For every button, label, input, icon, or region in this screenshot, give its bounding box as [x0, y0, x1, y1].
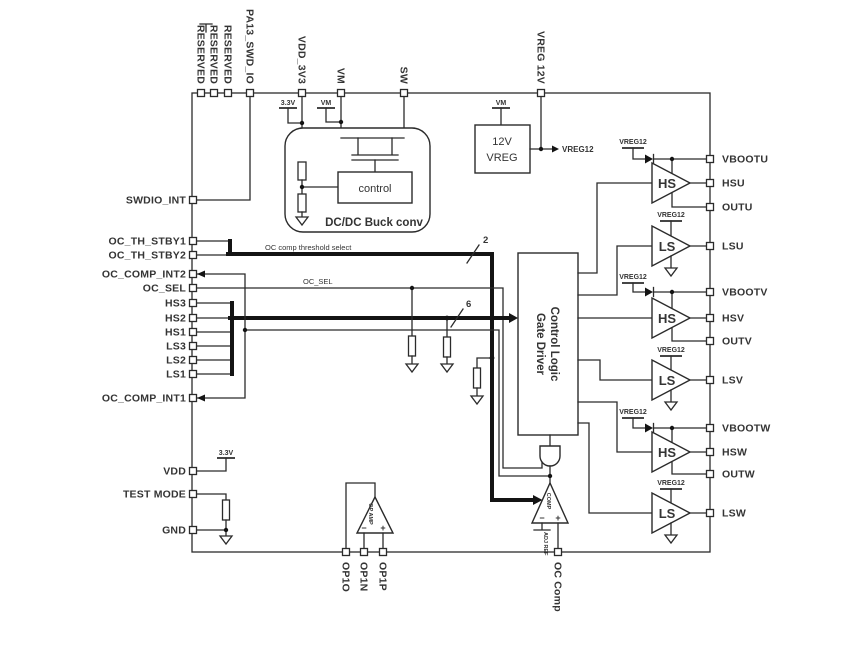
ls-driver-label: LS — [659, 239, 676, 254]
pin-outw — [707, 471, 714, 478]
junction-dot — [300, 185, 304, 189]
pin-test-mode — [190, 491, 197, 498]
top-pin-label: VREG 12V — [535, 31, 547, 84]
left-pin-label: HS2 — [165, 313, 186, 325]
top-pin-label: RESERVED — [222, 25, 234, 84]
pin-ls3 — [190, 343, 197, 350]
driver-ls-v: VREG12 LS — [652, 347, 707, 410]
opamp-label-rot: OP AMP — [367, 503, 373, 525]
gate-drive-routes — [578, 183, 652, 513]
left-pins: SWDIO_INT OC_TH_STBY1 OC_TH_STBY2 OC_COM… — [102, 195, 197, 537]
buck-title: DC/DC Buck conv — [325, 217, 423, 229]
pin-lsu — [707, 243, 714, 250]
junction-dot — [224, 528, 228, 532]
right-pin-label: VBOOTV — [722, 287, 768, 299]
bus6-trace — [230, 303, 510, 374]
vreg-12v-block: VM 12V VREG VREG12 — [475, 100, 594, 173]
comparator-label-rot: COMP — [545, 493, 551, 510]
left-pin-label: LS3 — [166, 341, 186, 353]
boot-supply-wire — [633, 418, 645, 428]
oc-comp-feedback-net — [197, 271, 550, 477]
pin-vbootu — [707, 156, 714, 163]
vreg-box — [475, 125, 530, 173]
right-pin-label: VBOOTW — [722, 423, 770, 435]
ls-driver-label: LS — [659, 373, 676, 388]
hs-driver-label: HS — [658, 311, 676, 326]
pin-vbootw — [707, 425, 714, 432]
junction-dot — [410, 286, 414, 290]
left-pin-label: TEST MODE — [123, 489, 186, 501]
pin-hs2 — [190, 315, 197, 322]
pin-ls1 — [190, 371, 197, 378]
buck-control-label: control — [358, 183, 391, 195]
pin-lsw — [707, 510, 714, 517]
and-gate-shape — [540, 446, 560, 466]
control-logic-block: Control Logic Gate Driver — [518, 253, 578, 435]
top-pin-label: RESERVED — [208, 25, 220, 84]
oc-comparator: COMP − + ADJ REF — [532, 476, 568, 556]
junction-dot — [670, 426, 674, 430]
oc-sel-label: OC_SEL — [303, 277, 333, 286]
bottom-pin-label: OP1O — [340, 562, 352, 592]
ground-symbol — [441, 364, 453, 372]
wire-pa13-to-swdio — [197, 97, 251, 201]
route-ls-w — [578, 423, 652, 513]
junction-dot — [243, 328, 247, 332]
pin-hsw — [707, 449, 714, 456]
left-pin-label: HS3 — [165, 298, 186, 310]
top-pin-label: VDD_3V3 — [296, 36, 308, 84]
oc-comp-int1-arrow-icon — [197, 395, 205, 402]
bottom-pin-label: OP1P — [377, 562, 389, 591]
vreg12-label: VREG12 — [657, 347, 685, 354]
pulldown-resistors — [406, 288, 492, 404]
pin-oc-comp-int1 — [190, 395, 197, 402]
pin-sw — [401, 90, 408, 97]
boot-supply-wire — [633, 283, 645, 292]
top-pin-label: VM — [335, 68, 347, 84]
comparator-minus-sign: − — [539, 513, 544, 523]
driver-ls-u: VREG12 LS — [652, 212, 707, 276]
pin-oc-comp-int2 — [190, 271, 197, 278]
ground-symbol — [665, 268, 677, 276]
pin-vdd — [190, 468, 197, 475]
pin-op1o — [343, 549, 350, 556]
hs-driver-label: HS — [658, 445, 676, 460]
pin-op1p — [380, 549, 387, 556]
pin-reserved-2 — [211, 90, 218, 97]
oc-threshold-bus: OC comp threshold select 2 — [197, 235, 543, 505]
left-pin-label: VDD — [163, 466, 186, 478]
pin-reserved-3 — [225, 90, 232, 97]
junction-dot — [548, 474, 552, 478]
left-pin-label: HS1 — [165, 327, 186, 339]
pin-oc-th-stby2 — [190, 252, 197, 259]
vdd-testmode-gnd: 3.3V — [197, 450, 236, 544]
adj-ref-label: ADJ REF — [542, 532, 548, 556]
top-pin-label: SW — [398, 67, 410, 84]
right-pin-label: HSW — [722, 447, 747, 459]
pin-oc-comp — [555, 549, 562, 556]
route-hs-u — [578, 183, 652, 273]
junction-dot — [670, 157, 674, 161]
bottom-pins: OP1O OP1N OP1P OC Comp — [340, 549, 564, 612]
supply-vm-label-2: VM — [496, 100, 507, 107]
pin-pa13-swd-io — [247, 90, 254, 97]
pin-vm — [338, 90, 345, 97]
testmode-resistor — [223, 500, 230, 520]
pin-vdd-3v3 — [299, 90, 306, 97]
driver-hs-v: VREG12 HS — [619, 274, 706, 341]
left-pin-label: GND — [162, 525, 186, 537]
bus2-trace — [228, 241, 535, 500]
ground-symbol — [665, 402, 677, 410]
vreg12-label: VREG12 — [657, 212, 685, 219]
control-logic-box — [518, 253, 578, 435]
supply-3v3-wire — [288, 108, 302, 123]
opamp-plus-sign: + — [380, 523, 385, 533]
buck-resistor-top — [298, 162, 306, 180]
left-pin-label: LS2 — [166, 355, 186, 367]
bus2-count: 2 — [483, 235, 488, 246]
right-pin-label: OUTU — [722, 202, 753, 214]
right-pin-label: LSV — [722, 375, 743, 387]
junction-dot — [490, 356, 495, 361]
pin-outv — [707, 338, 714, 345]
junction-dot — [339, 120, 343, 124]
pin-vbootv — [707, 289, 714, 296]
oc-comp-feedback-trace — [197, 274, 550, 476]
left-pin-label: OC_TH_STBY1 — [109, 236, 186, 248]
pin-hsv — [707, 315, 714, 322]
left-pin-label: OC_TH_STBY2 — [109, 250, 186, 262]
pin-op1n — [361, 549, 368, 556]
pin-ls2 — [190, 357, 197, 364]
supply-3v3-label: 3.3V — [281, 100, 296, 107]
vreg-label-2: VREG — [486, 152, 517, 164]
ground-symbol — [406, 364, 418, 372]
vreg12-label: VREG12 — [657, 480, 685, 487]
driver-hs-u: VREG12 HS — [619, 139, 706, 207]
pin-lsv — [707, 377, 714, 384]
junction-dot — [539, 147, 543, 151]
ls-driver-label: LS — [659, 506, 676, 521]
and-gate — [540, 435, 560, 476]
block-diagram-page: DC/DC Buck conv 3.3V VM control VM — [0, 0, 868, 649]
bottom-pin-label: OP1N — [358, 562, 370, 591]
right-pin-label: LSW — [722, 508, 746, 520]
junction-dot — [300, 121, 304, 125]
buck-resistor-bottom — [298, 194, 306, 212]
vreg12-net-label: VREG12 — [562, 145, 594, 154]
right-pin-label: LSU — [722, 241, 744, 253]
comparator-label: COMP — [545, 493, 551, 510]
driver-ls-w: VREG12 LS — [652, 480, 707, 543]
th-select-label: OC comp threshold select — [265, 243, 352, 252]
top-pin-label: PA13_SWD_IO — [244, 9, 256, 84]
opamp-label: OP AMP — [367, 503, 373, 525]
oc-comp-int2-arrow-icon — [197, 271, 205, 278]
op-amp: OP AMP − + — [346, 483, 393, 549]
route-ls-u — [578, 246, 652, 295]
vreg12-arrow-icon — [552, 146, 559, 153]
pin-gnd — [190, 527, 197, 534]
pin-oc-th-stby1 — [190, 238, 197, 245]
supply-vm-wire — [326, 108, 341, 122]
hs-driver-label: HS — [658, 176, 676, 191]
left-pin-label: OC_COMP_INT1 — [102, 393, 186, 405]
vreg-label-1: 12V — [492, 136, 512, 148]
top-pin-label: RESERVED — [195, 25, 207, 84]
bootstrap-diode-icon — [645, 288, 653, 297]
opamp-minus-sign: − — [361, 523, 366, 533]
comparator-plus-sign: + — [555, 513, 560, 523]
control-logic-line1: Control Logic — [548, 307, 560, 382]
vreg12-label: VREG12 — [619, 409, 647, 416]
adj-ref-rot: ADJ REF — [542, 532, 548, 556]
r3-wire — [477, 358, 492, 368]
vreg12-label: VREG12 — [619, 139, 647, 146]
pin-reserved-1 — [198, 90, 205, 97]
right-pin-label: HSU — [722, 178, 745, 190]
gnd-wire — [197, 520, 227, 536]
bus6-arrow-icon — [509, 313, 518, 323]
block-diagram-canvas: DC/DC Buck conv 3.3V VM control VM — [0, 0, 868, 649]
pin-swdio-int — [190, 197, 197, 204]
ground-symbol — [665, 535, 677, 543]
chip-outline — [192, 93, 710, 552]
pin-hs1 — [190, 329, 197, 336]
pin-hsu — [707, 180, 714, 187]
junction-dot — [670, 290, 674, 294]
pin-vreg-12v — [538, 90, 545, 97]
ground-symbol — [471, 396, 483, 404]
junction-dot — [445, 316, 450, 321]
right-pins: VBOOTU HSU OUTU LSU VBOOTV HSV OUTV LSV … — [707, 154, 771, 520]
right-pin-label: HSV — [722, 313, 744, 325]
pin-hs3 — [190, 300, 197, 307]
right-pin-label: OUTW — [722, 469, 755, 481]
supply-vm-label: VM — [321, 100, 332, 107]
bus6-count: 6 — [466, 299, 471, 310]
right-pin-label: OUTV — [722, 336, 752, 348]
driver-hs-w: VREG12 HS — [619, 409, 706, 474]
route-ls-v — [578, 360, 652, 380]
left-pin-label: OC_SEL — [143, 283, 187, 295]
vreg12-label: VREG12 — [619, 274, 647, 281]
control-logic-line2: Gate Driver — [534, 313, 546, 376]
supply-3v3-label-2: 3.3V — [219, 450, 234, 457]
pin-oc-sel — [190, 285, 197, 292]
left-pin-label: OC_COMP_INT2 — [102, 269, 186, 281]
left-pin-label: LS1 — [166, 369, 186, 381]
boot-supply-wire — [633, 148, 645, 159]
right-pin-label: VBOOTU — [722, 154, 768, 166]
pulldown-resistor-2 — [444, 337, 451, 357]
hs-ls-pin-wires — [197, 303, 233, 374]
pulldown-resistor-3 — [474, 368, 481, 388]
pin-outu — [707, 204, 714, 211]
ground-symbol — [220, 536, 232, 544]
pulldown-resistor-1 — [409, 336, 416, 356]
top-pins: RESERVED RESERVED RESERVED PA13_SWD_IO V… — [195, 9, 547, 96]
vdd-wire — [197, 458, 227, 471]
left-pin-label: SWDIO_INT — [126, 195, 187, 207]
testmode-wire — [197, 494, 227, 500]
bottom-pin-label: OC Comp — [552, 562, 564, 612]
